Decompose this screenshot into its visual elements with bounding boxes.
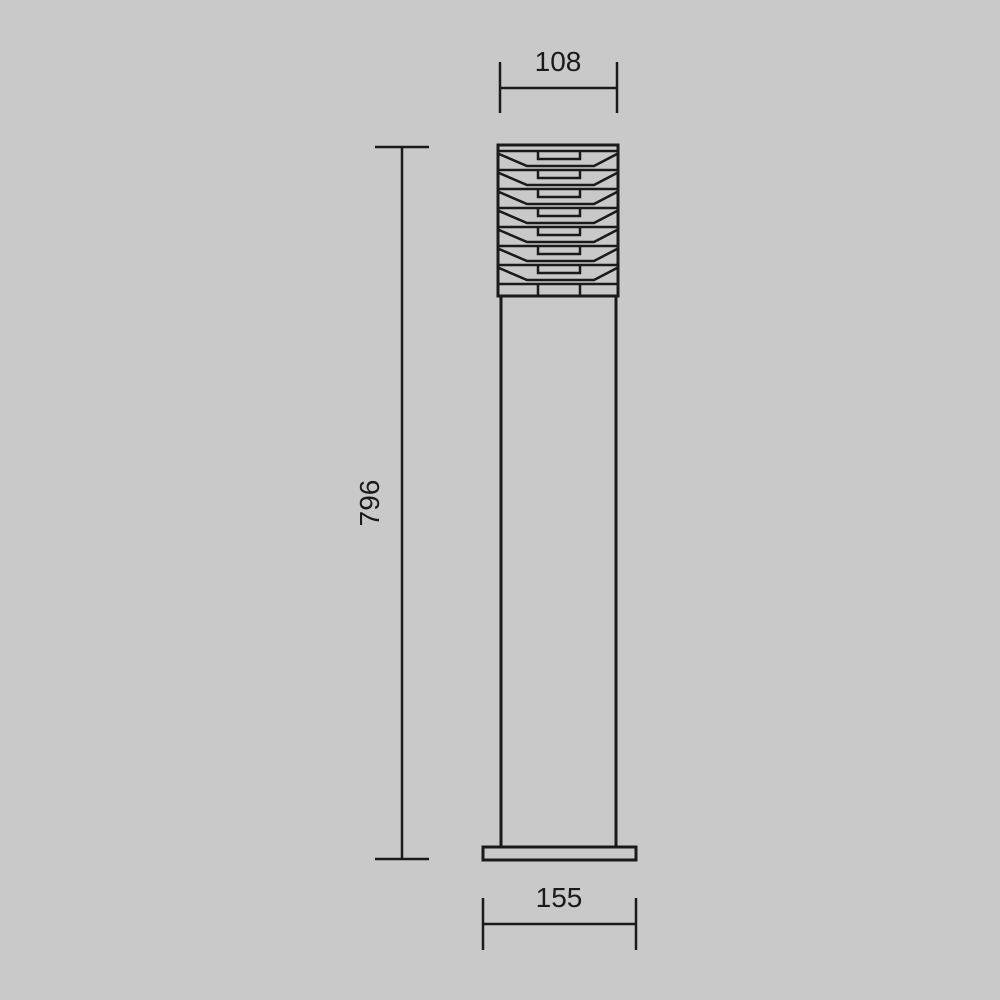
- louver-slat: [498, 189, 618, 208]
- drawing-canvas: 108 796 155: [0, 0, 1000, 1000]
- louver-slat: [498, 151, 618, 170]
- louver-slat: [498, 208, 618, 227]
- louver-slat: [498, 265, 618, 284]
- lamp-head: [498, 145, 618, 296]
- bollard-light-technical-drawing: 108 796 155: [0, 0, 1000, 1000]
- dimension-overall-height-label: 796: [354, 480, 385, 527]
- dimension-base-width: 155: [483, 882, 636, 950]
- dimension-base-width-label: 155: [536, 882, 583, 913]
- lamp-head-bottom-band: [538, 284, 580, 296]
- louver-slat: [498, 246, 618, 265]
- dimension-top-width: 108: [500, 46, 617, 113]
- louver-slat: [498, 170, 618, 189]
- dimension-top-width-label: 108: [535, 46, 582, 77]
- dimension-overall-height: 796: [354, 147, 429, 859]
- louver-grill: [498, 151, 618, 284]
- post-column: [501, 296, 616, 847]
- louver-slat: [498, 227, 618, 246]
- base-plate: [483, 847, 636, 860]
